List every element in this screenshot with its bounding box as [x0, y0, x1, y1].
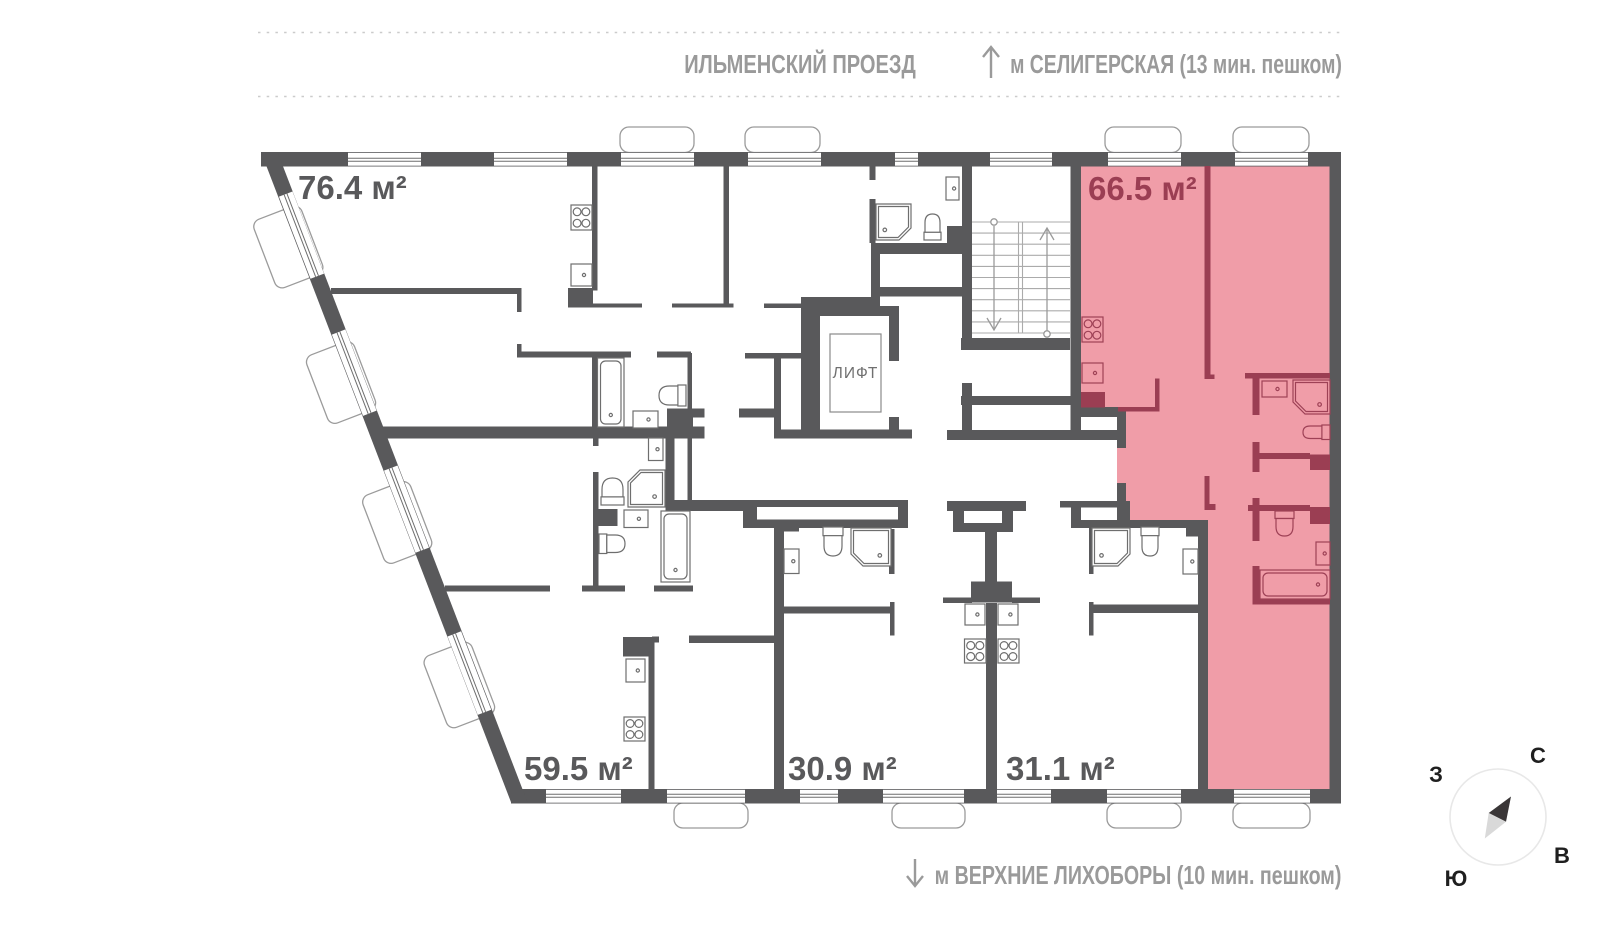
svg-text:В: В [1554, 843, 1570, 868]
svg-text:м СЕЛИГЕРСКАЯ (13 мин. пешком): м СЕЛИГЕРСКАЯ (13 мин. пешком) [1010, 49, 1342, 78]
svg-text:Ю: Ю [1445, 866, 1468, 891]
svg-text:ИЛЬМЕНСКИЙ ПРОЕЗД: ИЛЬМЕНСКИЙ ПРОЕЗД [684, 48, 916, 78]
svg-text:м ВЕРХНИЕ ЛИХОБОРЫ (10 мин. пе: м ВЕРХНИЕ ЛИХОБОРЫ (10 мин. пешком) [935, 860, 1342, 889]
svg-text:66.5 м²: 66.5 м² [1088, 170, 1197, 207]
svg-text:76.4 м²: 76.4 м² [298, 169, 407, 206]
svg-text:З: З [1429, 762, 1443, 787]
svg-text:С: С [1530, 743, 1546, 768]
svg-text:ЛИФТ: ЛИФТ [833, 365, 879, 382]
svg-text:30.9 м²: 30.9 м² [788, 750, 897, 787]
svg-text:31.1 м²: 31.1 м² [1006, 750, 1115, 787]
svg-text:59.5 м²: 59.5 м² [524, 750, 633, 787]
